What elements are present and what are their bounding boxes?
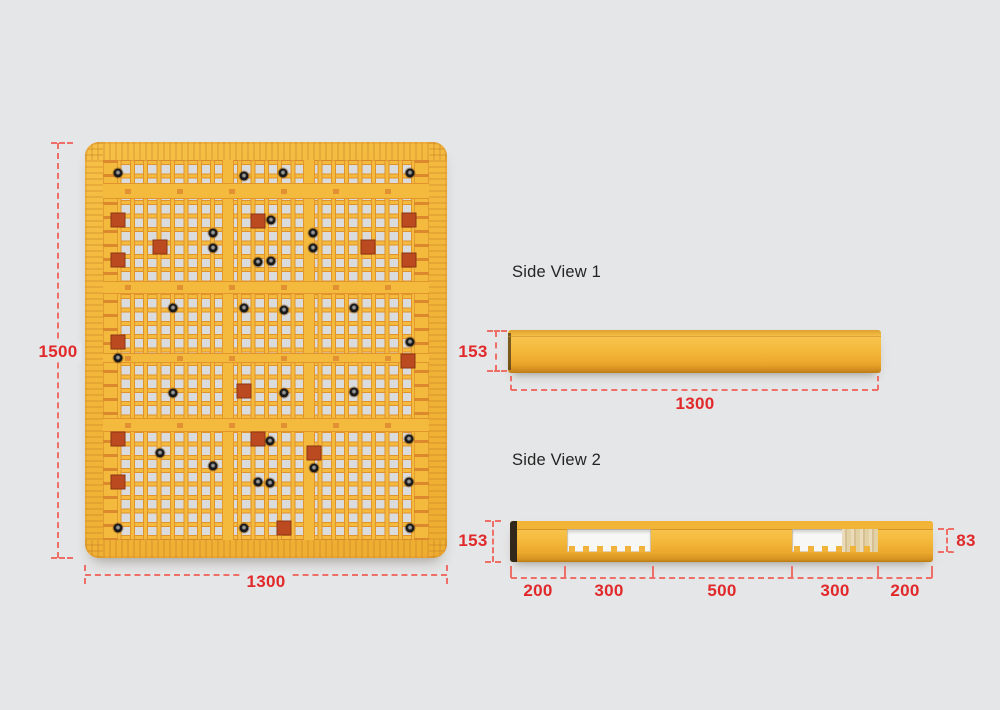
- side-view-1-title: Side View 1: [512, 263, 601, 282]
- pallet-connector-dot: [350, 304, 359, 313]
- pallet-connector-dot: [169, 389, 178, 398]
- sv2-segment-label-1: 300: [590, 581, 627, 601]
- pallet-connector-dot: [114, 524, 123, 533]
- pallet-connector-dot: [254, 435, 263, 444]
- sv2-segment-riser-0: [510, 566, 512, 578]
- pallet-connector-dot: [114, 354, 123, 363]
- pallet-connector-dot: [114, 338, 123, 347]
- diagram-canvas: 1500 1300 Side View 1 153 1300 Side View…: [0, 0, 1000, 710]
- pallet-connector-dot: [405, 216, 414, 225]
- pallet-connector-dot: [280, 389, 289, 398]
- top-view-width-dim-label: 1300: [242, 572, 289, 592]
- side-view-2-title: Side View 2: [512, 451, 601, 470]
- side-view-2-bar: [510, 521, 933, 562]
- top-view-width-dim-riser-left: [84, 565, 86, 584]
- sv2-segment-label-2: 500: [703, 581, 740, 601]
- pallet-connector-dot: [267, 216, 276, 225]
- sv2-fork-height-cap-top: [938, 528, 954, 530]
- pallet-connector-dot: [156, 449, 165, 458]
- sv1-height-dim-label: 153: [454, 342, 491, 362]
- pallet-connector-dot: [254, 217, 263, 226]
- pallet-connector-dot: [240, 387, 249, 396]
- pallet-connector-dot: [350, 388, 359, 397]
- sv2-segment-label-0: 200: [519, 581, 556, 601]
- sv2-height-bracket-line: [492, 521, 494, 562]
- sv2-fork-pocket-right: [792, 529, 878, 552]
- sv2-height-dim-label: 153: [454, 531, 491, 551]
- top-view-height-dim-label: 1500: [34, 342, 81, 362]
- pallet-connector-dot: [405, 256, 414, 265]
- sv1-length-dim-line: [511, 389, 878, 391]
- sv1-height-bracket-cap-top: [487, 330, 507, 332]
- sv2-length-dim-line: [511, 577, 932, 579]
- sv2-segment-riser-1: [564, 566, 566, 578]
- top-view-height-dim-cap-top: [51, 142, 73, 144]
- side-view-1-bar: [508, 330, 881, 373]
- pallet-connector-dot: [209, 462, 218, 471]
- pallet-connector-dot: [406, 338, 415, 347]
- sv2-segment-riser-4: [877, 566, 879, 578]
- pallet-connector-dot: [406, 524, 415, 533]
- pallet-connector-dot: [310, 464, 319, 473]
- pallet-connector-dot: [114, 216, 123, 225]
- pallet-dots-layer: [85, 142, 447, 558]
- sv2-height-bracket-cap-bottom: [485, 561, 501, 563]
- sv2-height-bracket-cap-top: [485, 520, 501, 522]
- sv2-segment-label-4: 200: [886, 581, 923, 601]
- pallet-connector-dot: [364, 243, 373, 252]
- pallet-top-view: [85, 142, 447, 558]
- pallet-connector-dot: [156, 243, 165, 252]
- pallet-connector-dot: [406, 169, 415, 178]
- sv2-fork-height-cap-bottom: [938, 551, 954, 553]
- top-view-width-dim-riser-right: [446, 565, 448, 584]
- sv2-segment-riser-5: [931, 566, 933, 578]
- pallet-connector-dot: [309, 244, 318, 253]
- sv1-length-dim-riser-left: [510, 376, 512, 390]
- pallet-connector-dot: [240, 304, 249, 313]
- pallet-connector-dot: [240, 172, 249, 181]
- pallet-connector-dot: [254, 478, 263, 487]
- sv1-height-bracket-line: [495, 331, 497, 371]
- pallet-connector-dot: [169, 304, 178, 313]
- pallet-connector-dot: [405, 435, 414, 444]
- pallet-connector-dot: [280, 306, 289, 315]
- sv1-length-dim-riser-right: [877, 376, 879, 390]
- pallet-connector-dot: [279, 169, 288, 178]
- sv2-fork-height-bracket-line: [946, 529, 948, 552]
- pallet-connector-dot: [309, 229, 318, 238]
- pallet-connector-dot: [266, 479, 275, 488]
- pallet-connector-dot: [114, 256, 123, 265]
- pallet-connector-dot: [114, 478, 123, 487]
- sv2-fork-pocket-left: [567, 529, 651, 552]
- pallet-connector-dot: [310, 449, 319, 458]
- top-view-height-dim-cap-bottom: [51, 557, 73, 559]
- sv2-segment-label-3: 300: [816, 581, 853, 601]
- pallet-connector-dot: [267, 257, 276, 266]
- sv2-segment-riser-3: [791, 566, 793, 578]
- pallet-connector-dot: [209, 229, 218, 238]
- pallet-connector-dot: [209, 244, 218, 253]
- pallet-connector-dot: [114, 169, 123, 178]
- pallet-connector-dot: [404, 357, 413, 366]
- sv2-bottom-deck: [510, 552, 933, 562]
- pallet-connector-dot: [405, 478, 414, 487]
- sv1-height-bracket-cap-bottom: [487, 370, 507, 372]
- pallet-connector-dot: [266, 437, 275, 446]
- sv2-fork-height-dim-label: 83: [952, 531, 980, 551]
- pallet-connector-dot: [240, 524, 249, 533]
- pallet-connector-dot: [254, 258, 263, 267]
- sv2-left-end-shadow: [510, 521, 517, 562]
- sv1-length-dim-label: 1300: [671, 394, 718, 414]
- sv2-segment-riser-2: [652, 566, 654, 578]
- pallet-connector-dot: [280, 524, 289, 533]
- pallet-connector-dot: [114, 435, 123, 444]
